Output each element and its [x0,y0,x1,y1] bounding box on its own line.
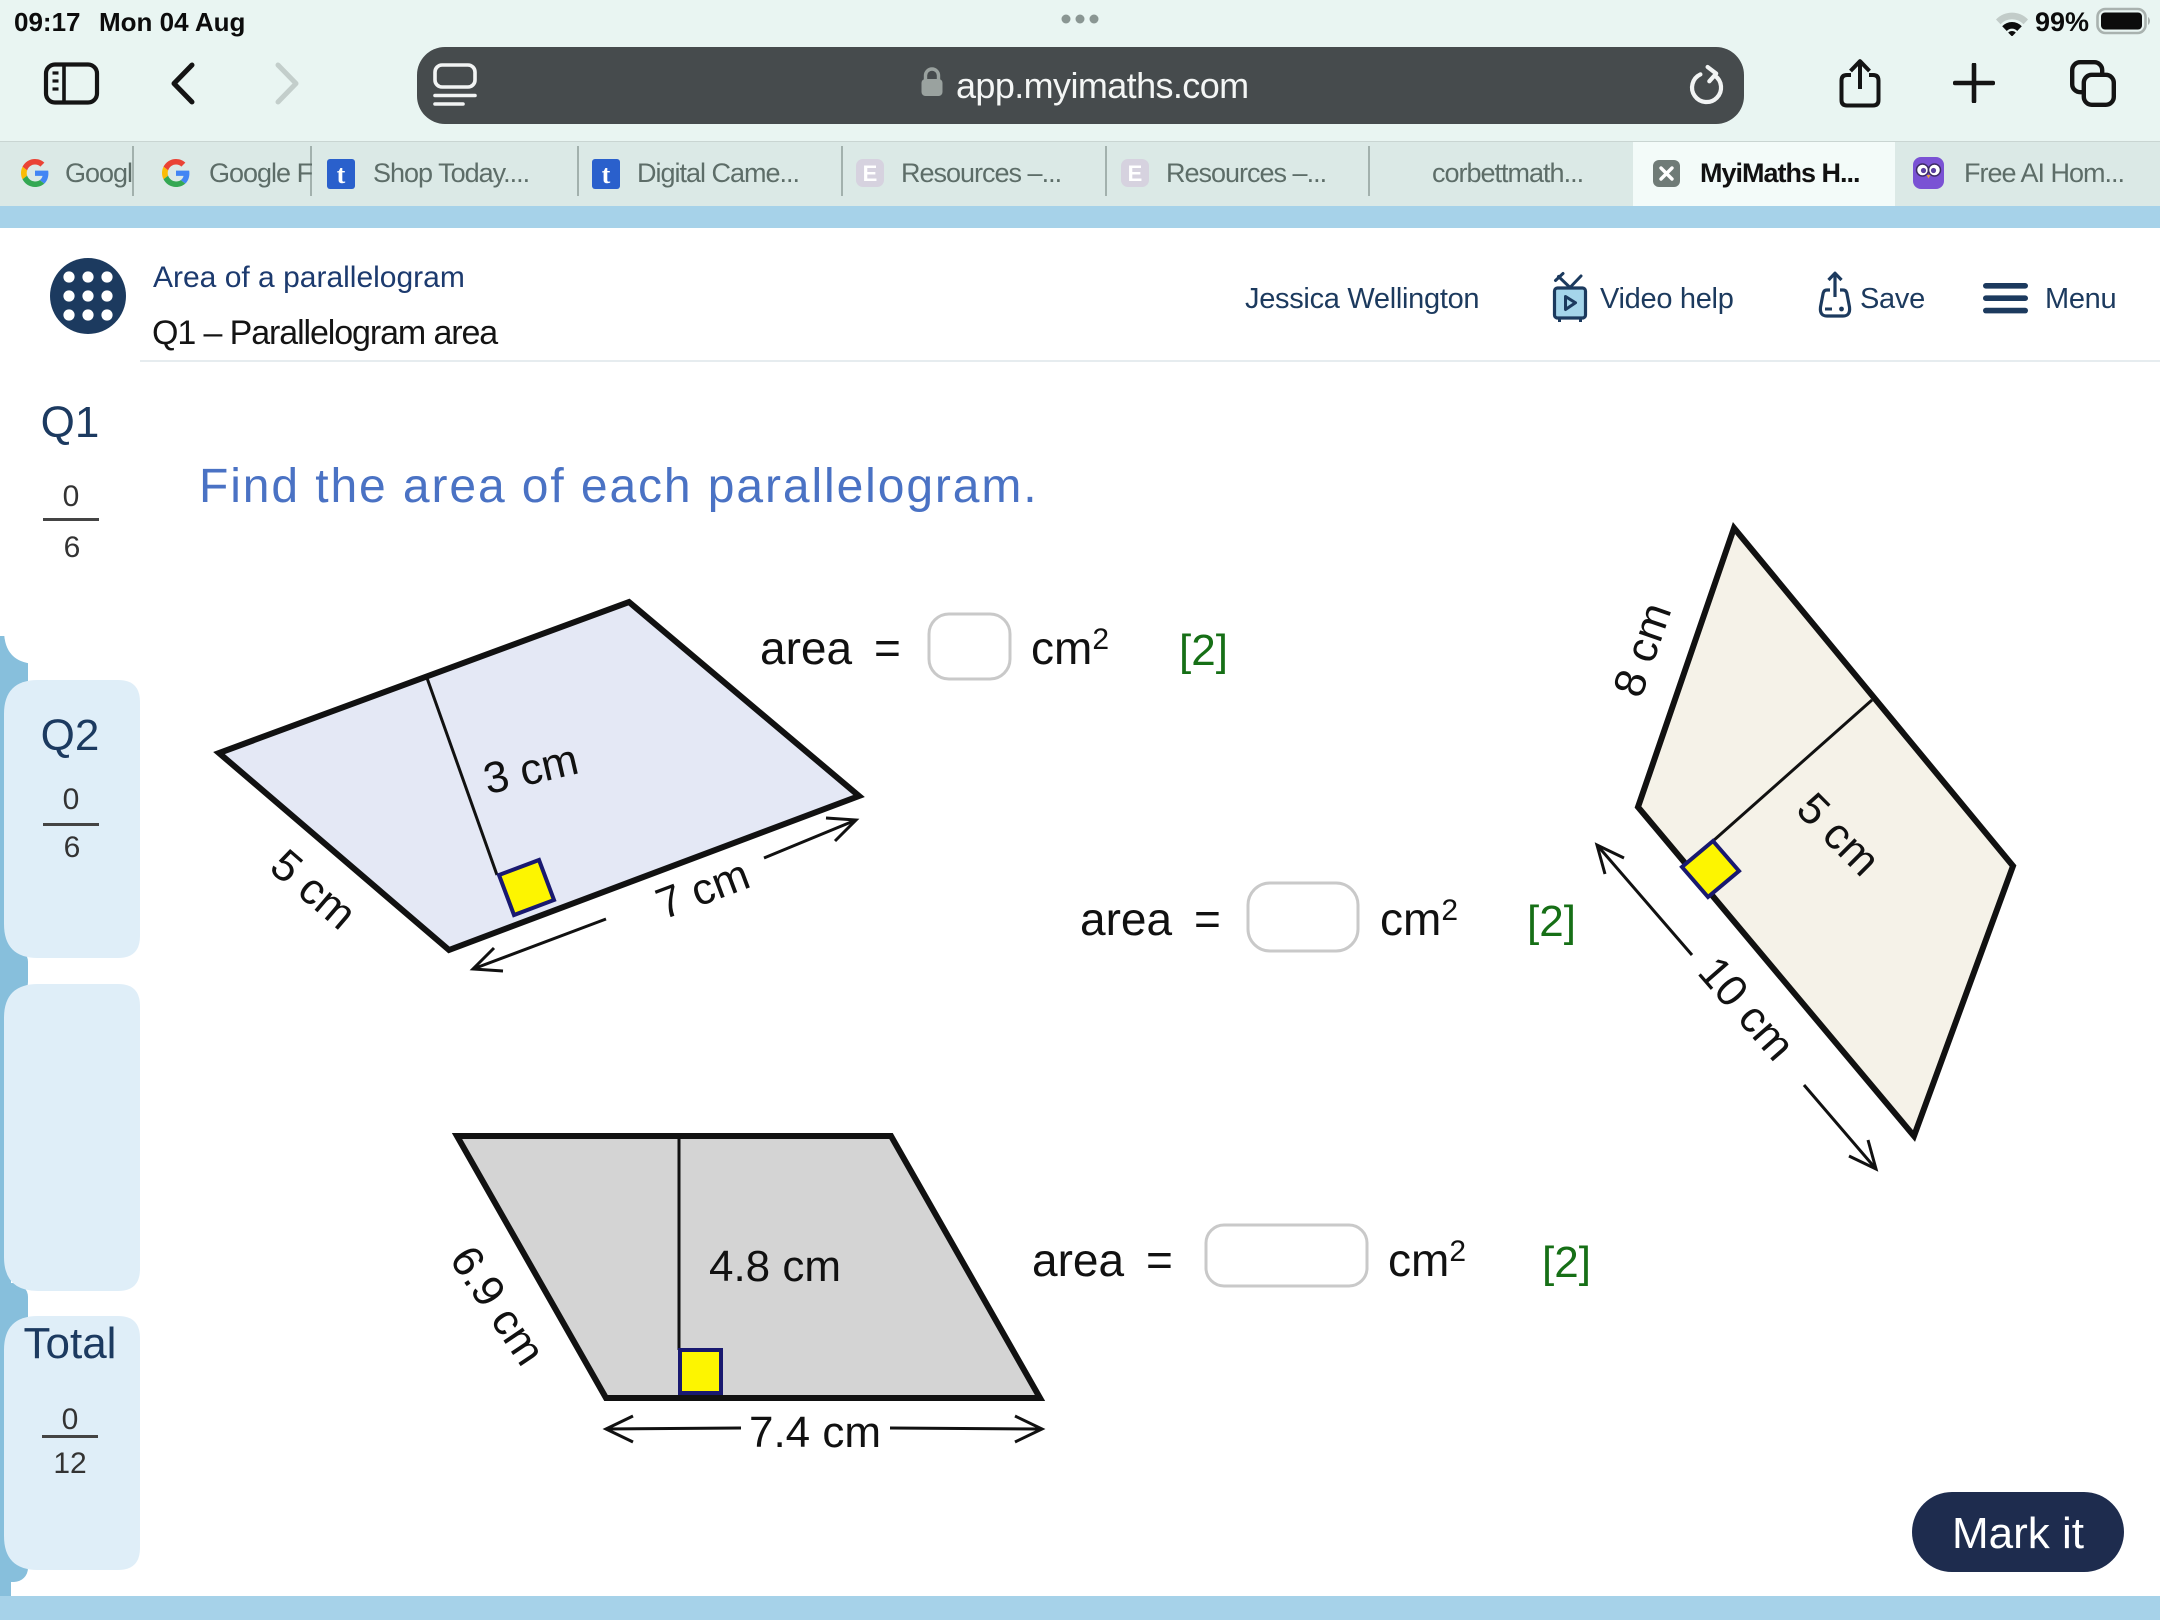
svg-text:cm2: cm2 [1031,622,1109,674]
svg-text:t: t [602,160,611,189]
svg-text:99%: 99% [2035,7,2089,36]
svg-text:[2]: [2] [1179,626,1228,675]
svg-text:=: = [874,622,901,674]
svg-text:0: 0 [63,480,80,513]
svg-text:area: area [760,622,852,674]
svg-text:12: 12 [53,1447,86,1480]
svg-text:area: area [1080,893,1172,945]
svg-text:E: E [1128,161,1143,186]
svg-text:Q2: Q2 [41,711,100,760]
svg-text:cm2: cm2 [1380,893,1458,945]
svg-text:8 cm: 8 cm [1604,597,1681,703]
svg-text:[2]: [2] [1527,897,1576,946]
svg-text:6: 6 [64,831,81,864]
svg-text:7.4 cm: 7.4 cm [749,1408,881,1457]
svg-text:Find the area of each parallel: Find the area of each parallelogram. [199,460,1039,513]
svg-text:area: area [1032,1234,1124,1286]
svg-text:=: = [1194,893,1221,945]
svg-text:cm2: cm2 [1388,1234,1466,1286]
svg-text:Q1: Q1 [41,398,100,447]
svg-text:6: 6 [64,531,81,564]
svg-text:[2]: [2] [1542,1238,1591,1287]
svg-text:Mark it: Mark it [1952,1509,2084,1558]
svg-text:0: 0 [63,783,80,816]
svg-text:Total: Total [24,1319,117,1368]
svg-text:=: = [1146,1234,1173,1286]
svg-text:E: E [863,161,878,186]
svg-text:t: t [337,160,346,189]
svg-text:0: 0 [62,1403,79,1436]
svg-text:4.8 cm: 4.8 cm [709,1242,841,1291]
